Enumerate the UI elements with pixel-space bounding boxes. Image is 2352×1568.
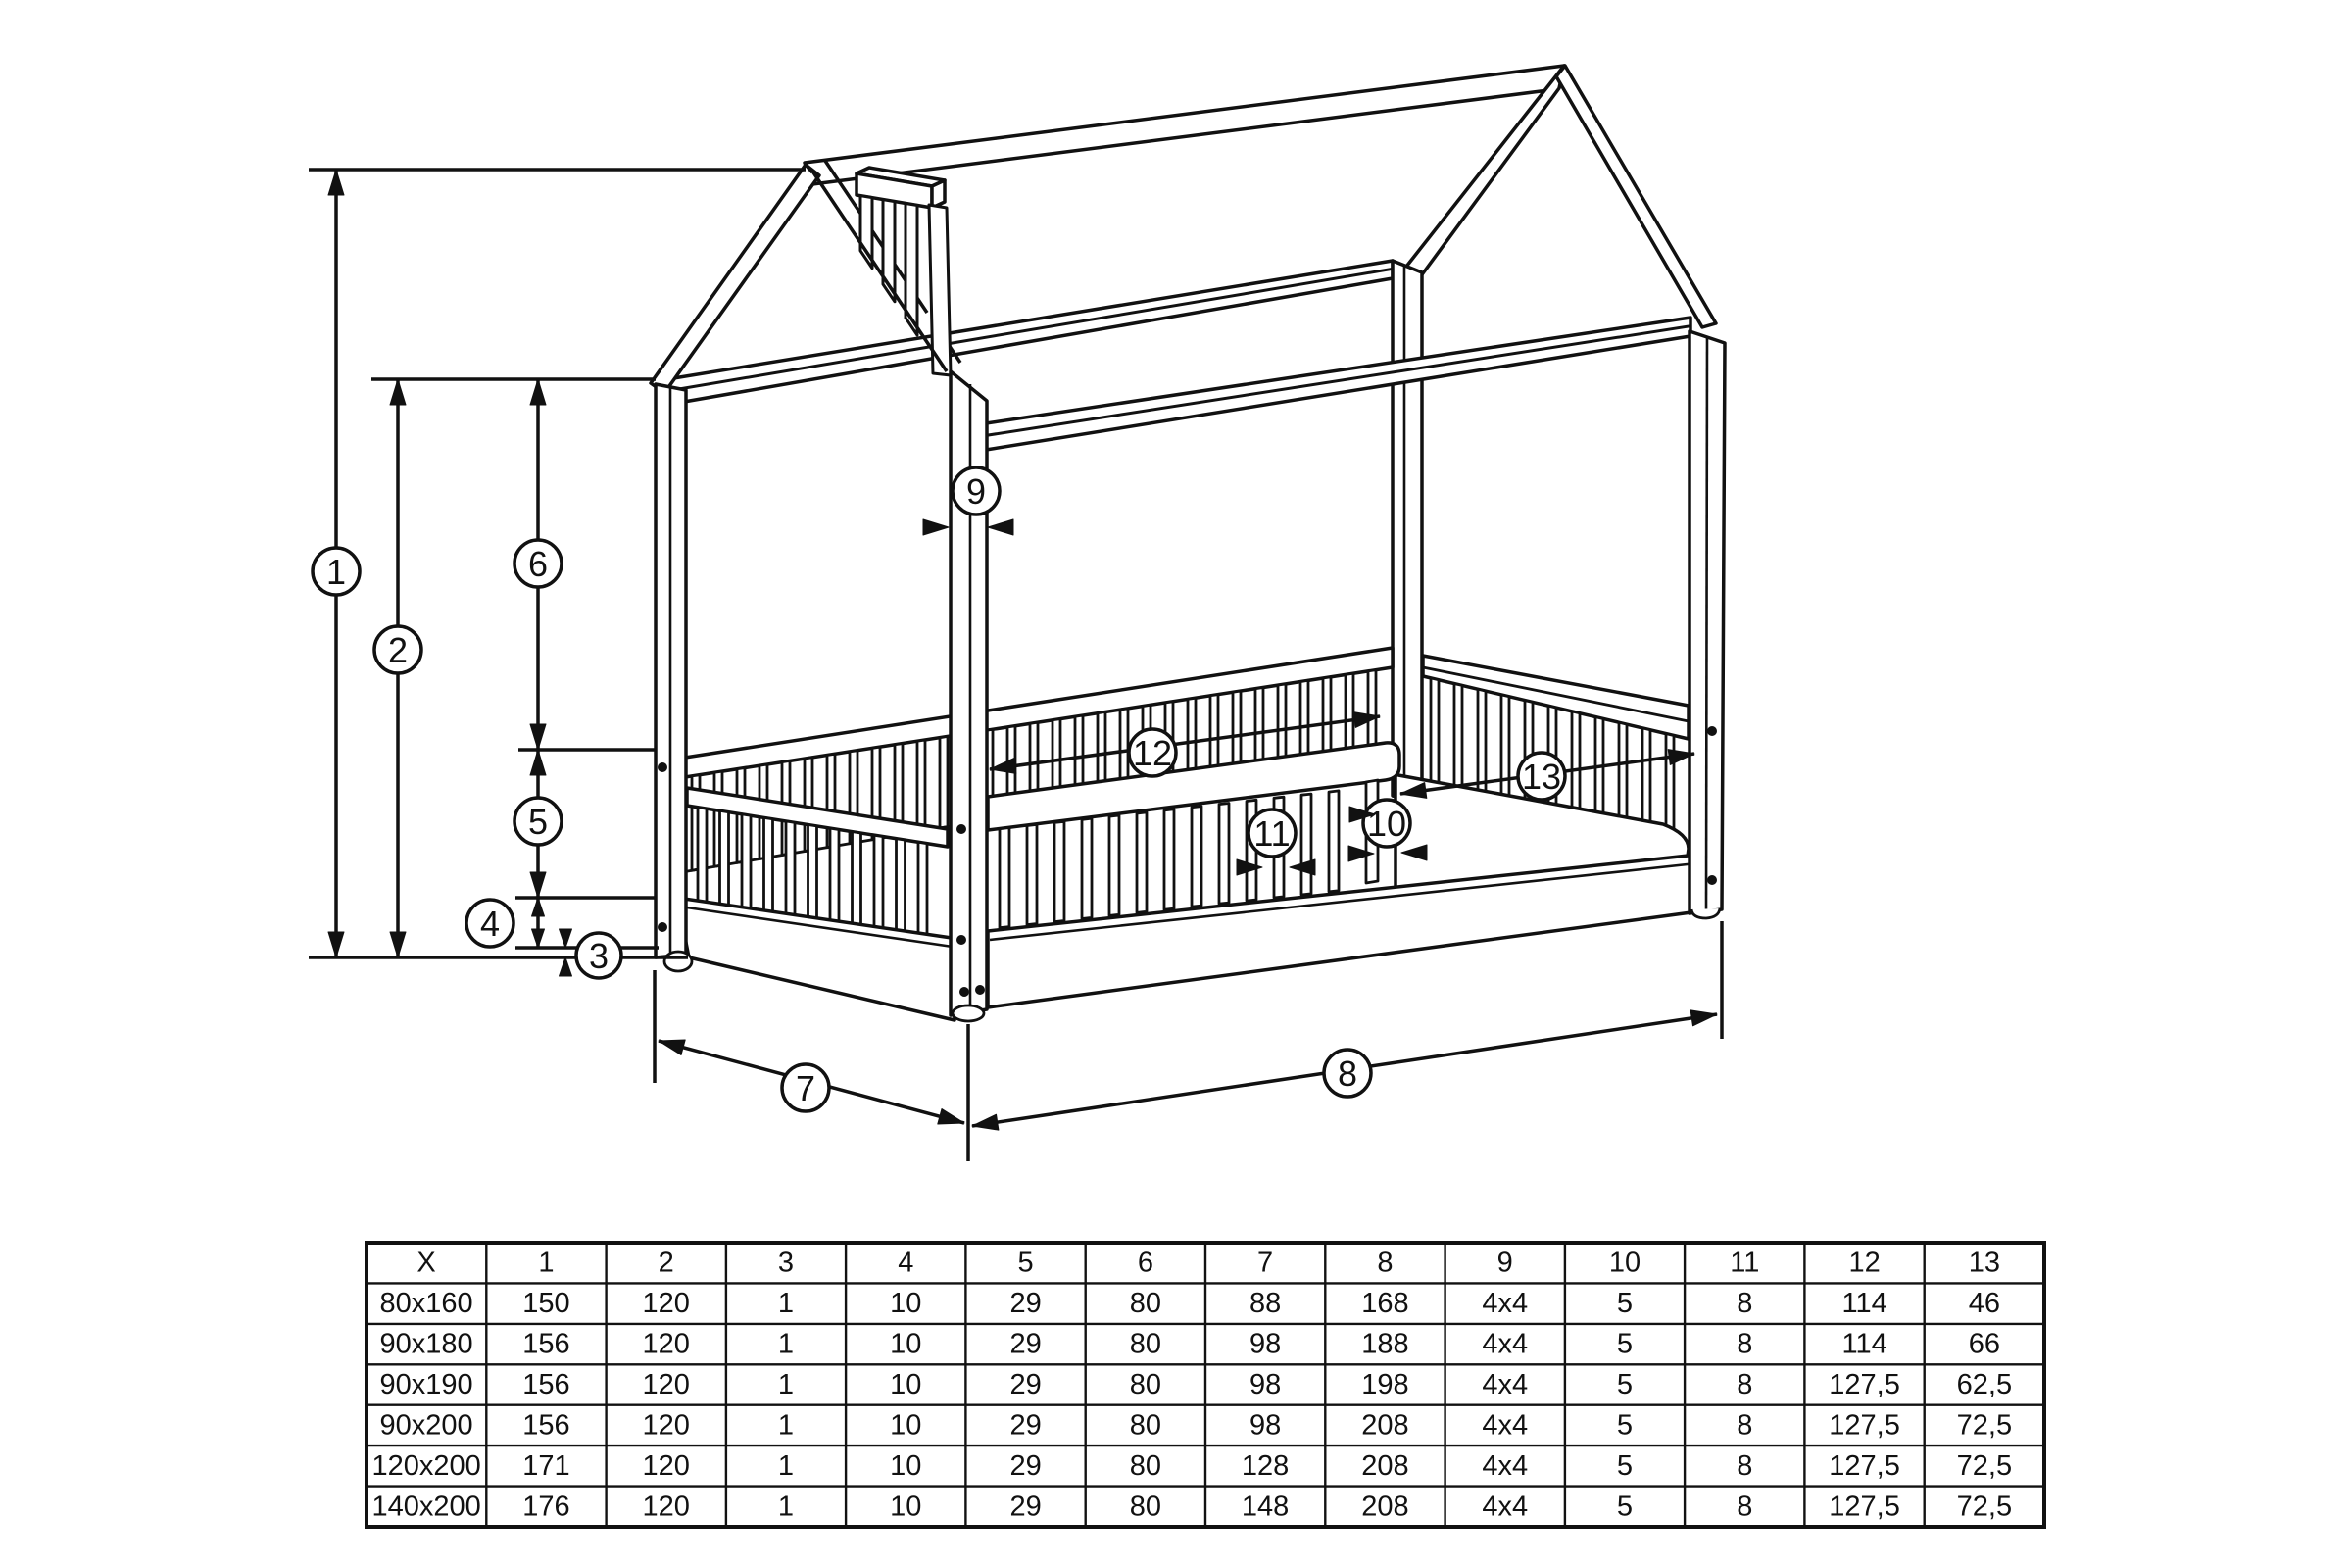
svg-text:171: 171 (522, 1450, 569, 1482)
svg-text:9: 9 (1497, 1248, 1513, 1279)
svg-text:5: 5 (1617, 1369, 1633, 1400)
svg-text:80: 80 (1130, 1369, 1161, 1400)
svg-text:120: 120 (643, 1491, 690, 1522)
svg-text:5: 5 (1617, 1491, 1633, 1522)
svg-text:8: 8 (1737, 1409, 1752, 1441)
svg-text:208: 208 (1361, 1450, 1408, 1482)
svg-text:29: 29 (1009, 1450, 1041, 1482)
svg-text:29: 29 (1009, 1288, 1041, 1319)
svg-text:3: 3 (589, 936, 609, 976)
svg-text:127,5: 127,5 (1829, 1409, 1900, 1441)
svg-text:1: 1 (778, 1288, 794, 1319)
svg-text:8: 8 (1737, 1329, 1752, 1360)
svg-text:80: 80 (1130, 1409, 1161, 1441)
svg-text:9: 9 (966, 471, 986, 512)
svg-text:156: 156 (522, 1409, 569, 1441)
svg-text:12: 12 (1133, 733, 1172, 773)
svg-text:5: 5 (1018, 1248, 1034, 1279)
svg-text:72,5: 72,5 (1957, 1450, 2012, 1482)
svg-text:4x4: 4x4 (1482, 1450, 1528, 1482)
svg-text:80x160: 80x160 (380, 1288, 473, 1319)
svg-text:10: 10 (890, 1329, 921, 1360)
svg-text:148: 148 (1242, 1491, 1289, 1522)
svg-text:208: 208 (1361, 1409, 1408, 1441)
svg-text:80: 80 (1130, 1491, 1161, 1522)
svg-text:X: X (416, 1248, 435, 1279)
svg-text:140x200: 140x200 (371, 1491, 480, 1522)
svg-text:90x200: 90x200 (380, 1409, 473, 1441)
svg-text:1: 1 (538, 1248, 554, 1279)
svg-text:120: 120 (643, 1288, 690, 1319)
svg-text:8: 8 (1737, 1369, 1752, 1400)
svg-text:5: 5 (1617, 1450, 1633, 1482)
svg-text:12: 12 (1848, 1248, 1880, 1279)
svg-text:208: 208 (1361, 1491, 1408, 1522)
svg-text:127,5: 127,5 (1829, 1369, 1900, 1400)
svg-text:4x4: 4x4 (1482, 1288, 1528, 1319)
svg-text:176: 176 (522, 1491, 569, 1522)
svg-text:5: 5 (528, 802, 548, 842)
svg-text:188: 188 (1361, 1329, 1408, 1360)
svg-text:120: 120 (643, 1450, 690, 1482)
svg-text:13: 13 (1522, 757, 1561, 797)
svg-text:62,5: 62,5 (1957, 1369, 2012, 1400)
svg-text:8: 8 (1737, 1288, 1752, 1319)
svg-text:1: 1 (326, 552, 346, 592)
svg-text:98: 98 (1249, 1409, 1281, 1441)
svg-text:72,5: 72,5 (1957, 1491, 2012, 1522)
svg-text:120: 120 (643, 1369, 690, 1400)
svg-text:3: 3 (778, 1248, 794, 1279)
svg-text:1: 1 (778, 1491, 794, 1522)
svg-text:5: 5 (1617, 1288, 1633, 1319)
svg-text:156: 156 (522, 1329, 569, 1360)
svg-text:8: 8 (1737, 1491, 1752, 1522)
svg-text:4x4: 4x4 (1482, 1369, 1528, 1400)
svg-text:120: 120 (643, 1329, 690, 1360)
svg-text:5: 5 (1617, 1409, 1633, 1441)
svg-text:2: 2 (388, 630, 408, 670)
svg-text:120x200: 120x200 (371, 1450, 480, 1482)
svg-text:128: 128 (1242, 1450, 1289, 1482)
svg-text:10: 10 (890, 1369, 921, 1400)
svg-text:90x190: 90x190 (380, 1369, 473, 1400)
svg-text:5: 5 (1617, 1329, 1633, 1360)
svg-text:29: 29 (1009, 1369, 1041, 1400)
svg-text:10: 10 (890, 1409, 921, 1441)
svg-text:80: 80 (1130, 1450, 1161, 1482)
svg-text:10: 10 (1367, 804, 1406, 844)
svg-text:10: 10 (890, 1288, 921, 1319)
svg-text:46: 46 (1969, 1288, 2000, 1319)
svg-text:13: 13 (1969, 1248, 2000, 1279)
svg-text:2: 2 (659, 1248, 674, 1279)
svg-text:1: 1 (778, 1329, 794, 1360)
svg-text:1: 1 (778, 1409, 794, 1441)
svg-text:72,5: 72,5 (1957, 1409, 2012, 1441)
svg-text:88: 88 (1249, 1288, 1281, 1319)
svg-text:66: 66 (1969, 1329, 2000, 1360)
svg-text:114: 114 (1841, 1288, 1886, 1319)
svg-text:90x180: 90x180 (380, 1329, 473, 1360)
svg-text:127,5: 127,5 (1829, 1450, 1900, 1482)
svg-text:1: 1 (778, 1369, 794, 1400)
svg-text:29: 29 (1009, 1491, 1041, 1522)
svg-text:8: 8 (1338, 1053, 1357, 1094)
svg-text:7: 7 (796, 1068, 815, 1108)
svg-text:4x4: 4x4 (1482, 1409, 1528, 1441)
svg-text:8: 8 (1737, 1450, 1752, 1482)
svg-text:4x4: 4x4 (1482, 1329, 1528, 1360)
svg-text:198: 198 (1361, 1369, 1408, 1400)
svg-text:1: 1 (778, 1450, 794, 1482)
svg-text:8: 8 (1377, 1248, 1393, 1279)
svg-text:10: 10 (890, 1450, 921, 1482)
svg-text:11: 11 (1730, 1248, 1759, 1279)
svg-text:127,5: 127,5 (1829, 1491, 1900, 1522)
svg-text:10: 10 (1609, 1248, 1641, 1279)
svg-text:7: 7 (1257, 1248, 1273, 1279)
svg-text:4: 4 (898, 1248, 913, 1279)
svg-text:6: 6 (1138, 1248, 1153, 1279)
svg-text:80: 80 (1130, 1329, 1161, 1360)
svg-text:4: 4 (480, 904, 500, 944)
svg-text:29: 29 (1009, 1329, 1041, 1360)
svg-text:10: 10 (890, 1491, 921, 1522)
svg-text:150: 150 (522, 1288, 569, 1319)
svg-text:80: 80 (1130, 1288, 1161, 1319)
svg-text:156: 156 (522, 1369, 569, 1400)
svg-text:114: 114 (1841, 1329, 1886, 1360)
svg-text:6: 6 (528, 544, 548, 584)
svg-text:29: 29 (1009, 1409, 1041, 1441)
svg-text:98: 98 (1249, 1369, 1281, 1400)
svg-text:168: 168 (1361, 1288, 1408, 1319)
svg-text:120: 120 (643, 1409, 690, 1441)
svg-text:98: 98 (1249, 1329, 1281, 1360)
svg-text:4x4: 4x4 (1482, 1491, 1528, 1522)
svg-text:11: 11 (1253, 813, 1290, 854)
